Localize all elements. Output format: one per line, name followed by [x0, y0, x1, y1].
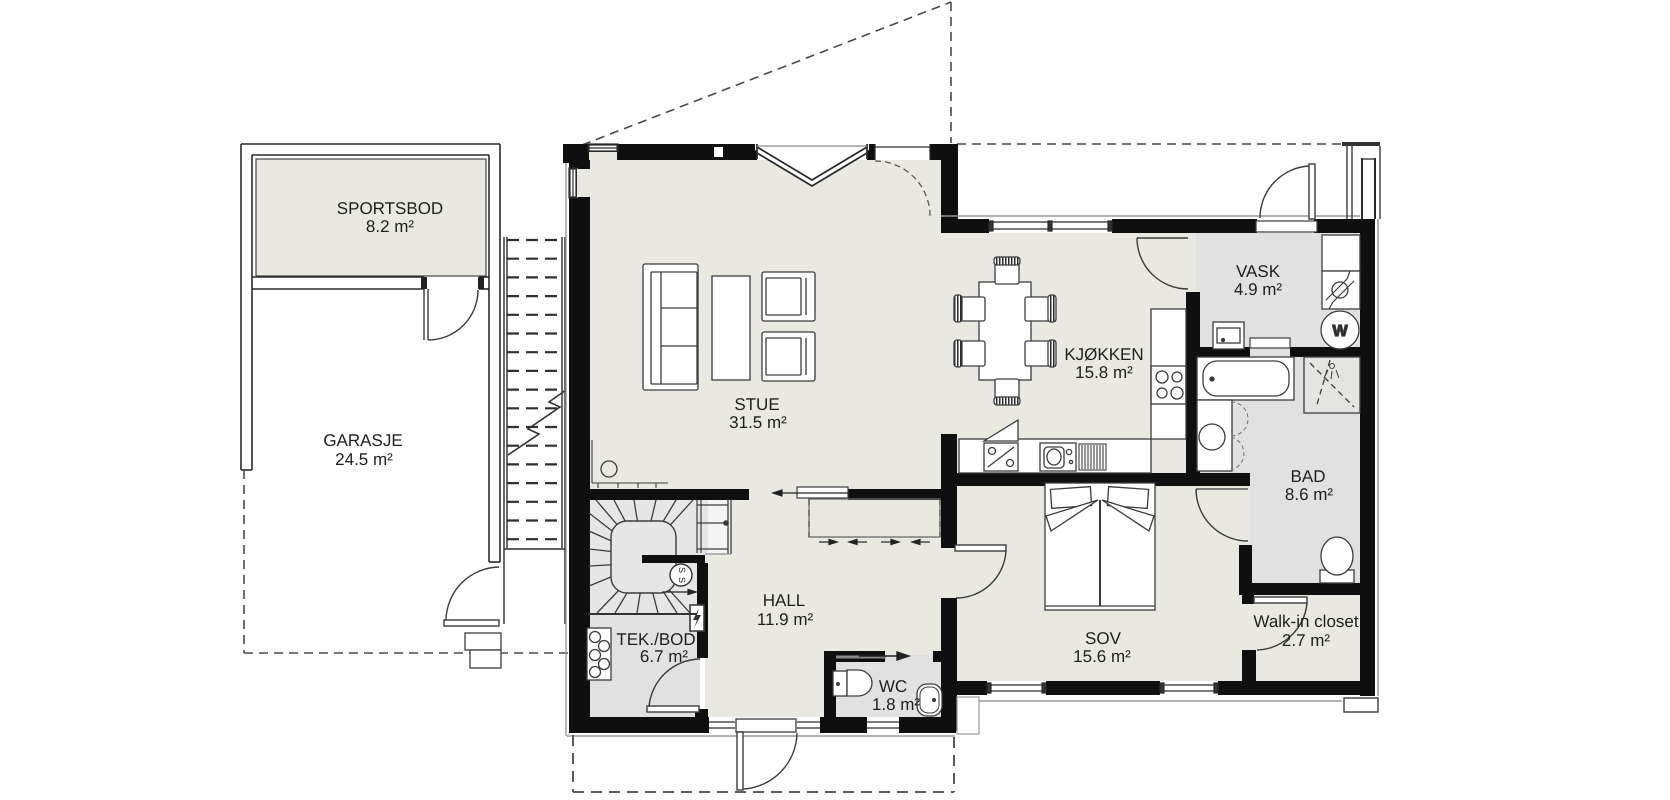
- svg-text:4.9 m²: 4.9 m²: [1234, 280, 1283, 299]
- svg-text:24.5 m²: 24.5 m²: [335, 450, 393, 469]
- svg-text:15.6 m²: 15.6 m²: [1073, 647, 1131, 666]
- svg-text:8.6 m²: 8.6 m²: [1285, 485, 1334, 504]
- svg-text:15.8 m²: 15.8 m²: [1075, 363, 1133, 382]
- svg-text:S: S: [677, 577, 687, 583]
- svg-text:8.2 m²: 8.2 m²: [366, 217, 415, 236]
- svg-text:1.8 m²: 1.8 m²: [872, 695, 921, 714]
- svg-text:2.7 m²: 2.7 m²: [1282, 631, 1331, 650]
- svg-text:WC: WC: [879, 677, 907, 696]
- svg-text:BAD: BAD: [1291, 467, 1326, 486]
- svg-text:6.7 m²: 6.7 m²: [640, 647, 689, 666]
- svg-text:11.9 m²: 11.9 m²: [757, 610, 814, 629]
- svg-text:S: S: [677, 567, 687, 573]
- svg-text:W: W: [1332, 323, 1348, 340]
- svg-text:HALL: HALL: [763, 591, 806, 610]
- svg-text:KJØKKEN: KJØKKEN: [1064, 345, 1143, 364]
- svg-text:VASK: VASK: [1236, 262, 1281, 281]
- svg-text:SPORTSBOD: SPORTSBOD: [337, 199, 443, 218]
- svg-text:Walk-in closet: Walk-in closet: [1253, 612, 1358, 631]
- svg-text:GARASJE: GARASJE: [323, 431, 402, 450]
- svg-text:SOV: SOV: [1085, 629, 1122, 648]
- svg-text:31.5 m²: 31.5 m²: [729, 413, 787, 432]
- svg-text:STUE: STUE: [734, 395, 779, 414]
